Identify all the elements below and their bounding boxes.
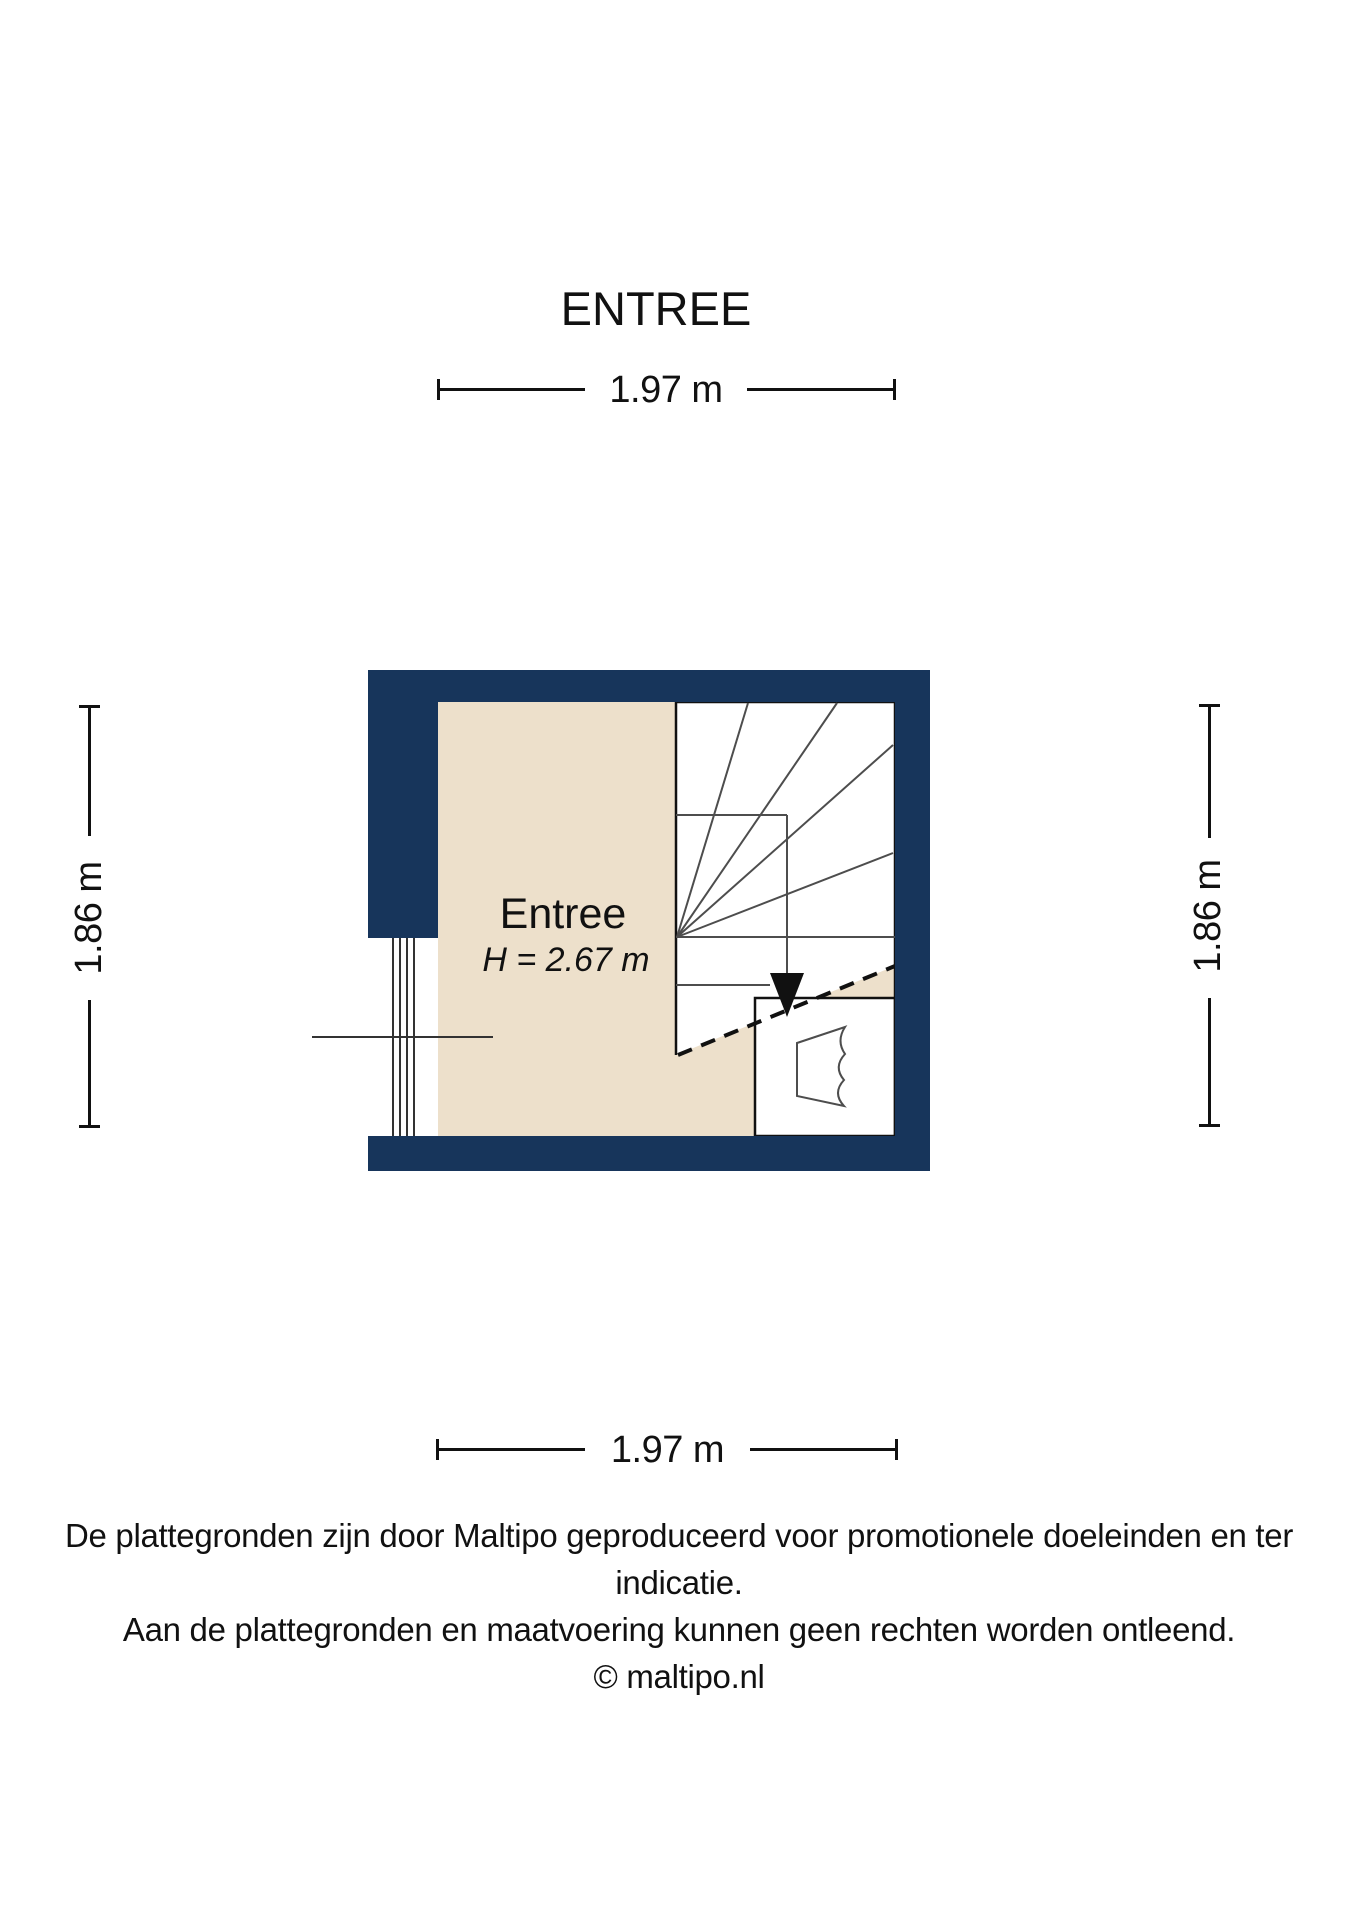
dimension-bottom-label: 1.97 m — [585, 1429, 750, 1472]
disclaimer-line-2: Aan de plattegronden en maatvoering kunn… — [0, 1606, 1358, 1653]
dimension-right-line-top — [1208, 705, 1211, 838]
wall-bottom — [368, 1136, 930, 1171]
wall-left — [368, 670, 438, 938]
dimension-left-tick-bottom — [79, 1125, 100, 1128]
dimension-right-line-bottom — [1208, 998, 1211, 1126]
dimension-top-tick-right — [893, 379, 896, 400]
dimension-top-label: 1.97 m — [585, 369, 747, 412]
dimension-right-tick-bottom — [1199, 1124, 1220, 1127]
disclaimer-line-3: © maltipo.nl — [0, 1653, 1358, 1700]
room-height-label: H = 2.67 m — [446, 941, 686, 980]
dimension-bottom-line-right — [750, 1448, 897, 1451]
wall-top — [368, 670, 930, 702]
dimension-left-label: 1.86 m — [67, 838, 111, 998]
dimension-top-line-right — [747, 388, 894, 391]
dimension-left-line-top — [88, 706, 91, 836]
room-label: Entree — [453, 890, 673, 939]
disclaimer-line-1: De plattegronden zijn door Maltipo gepro… — [0, 1512, 1358, 1606]
dimension-bottom-tick-right — [895, 1439, 898, 1460]
dimension-top-line-left — [438, 388, 585, 391]
disclaimer: De plattegronden zijn door Maltipo gepro… — [0, 1512, 1358, 1700]
entry-threshold-line — [312, 1036, 493, 1038]
floor-plan-title: ENTREE — [375, 281, 937, 336]
floorplan-page: { "title": "ENTREE", "room": { "name": "… — [0, 0, 1358, 1920]
dimension-right-label: 1.86 m — [1186, 836, 1230, 996]
wall-right — [895, 670, 930, 1171]
dimension-left-line-bottom — [88, 1000, 91, 1127]
dimension-bottom-line-left — [437, 1448, 585, 1451]
